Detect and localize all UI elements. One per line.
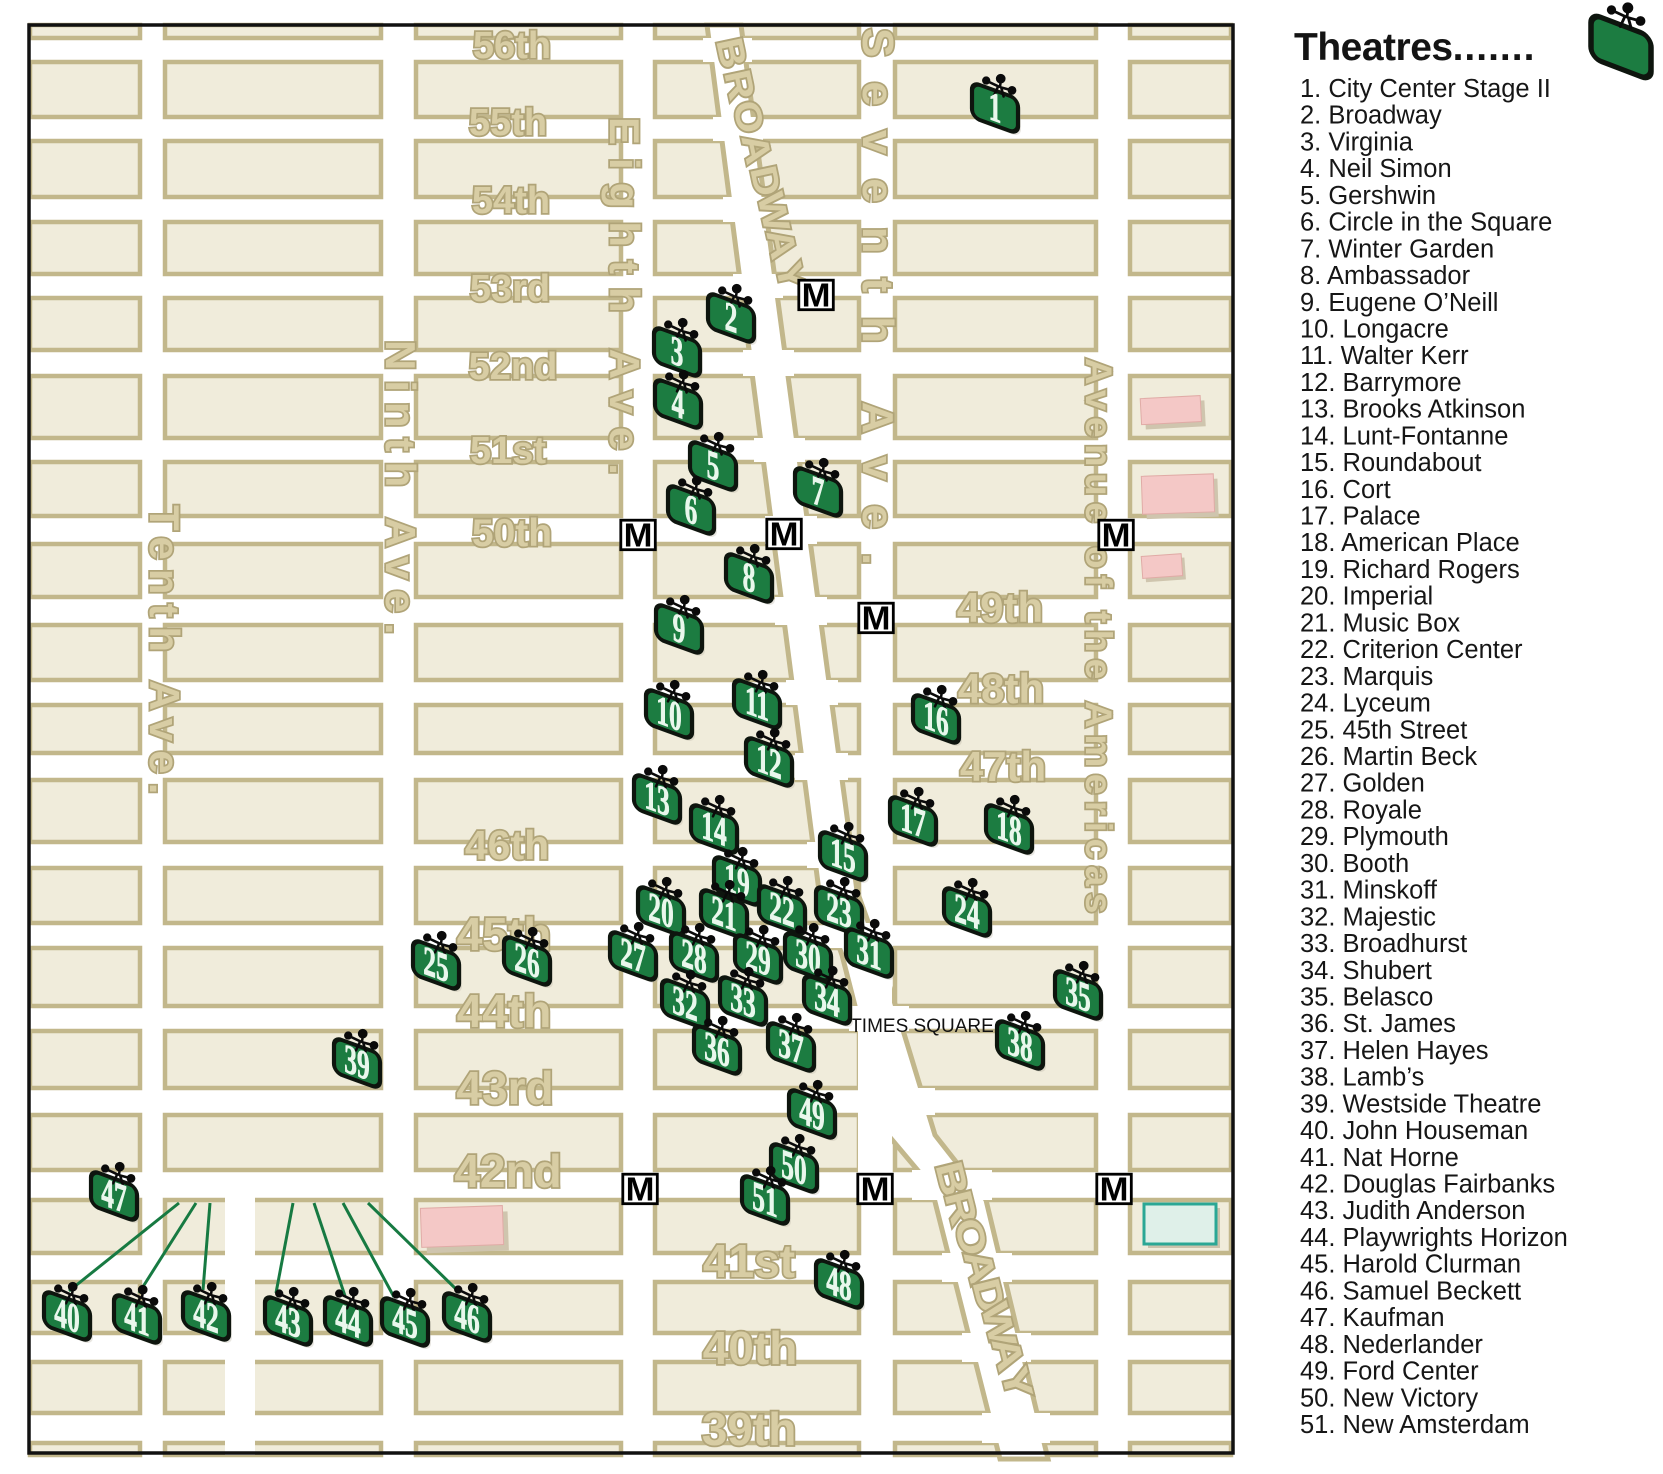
svg-text:48th: 48th: [958, 665, 1044, 712]
svg-text:11: 11: [745, 676, 769, 731]
svg-text:15: 15: [830, 828, 855, 883]
svg-text:22: 22: [769, 882, 794, 937]
svg-text:M: M: [1100, 1171, 1129, 1208]
svg-text:49: 49: [799, 1086, 824, 1141]
svg-text:29. Plymouth: 29. Plymouth: [1300, 823, 1449, 851]
svg-text:14: 14: [701, 801, 726, 856]
svg-text:32: 32: [672, 976, 697, 1031]
svg-text:49. Ford Center: 49. Ford Center: [1300, 1358, 1479, 1386]
svg-text:17: 17: [900, 793, 925, 848]
svg-text:15. Roundabout: 15. Roundabout: [1300, 449, 1482, 477]
svg-text:Tenth Ave.: Tenth Ave.: [141, 505, 188, 803]
svg-text:17. Palace: 17. Palace: [1300, 503, 1421, 531]
svg-text:M: M: [802, 277, 831, 314]
svg-text:34. Shubert: 34. Shubert: [1300, 957, 1432, 985]
svg-text:34: 34: [814, 972, 839, 1027]
svg-text:50: 50: [781, 1140, 806, 1195]
svg-text:41: 41: [124, 1291, 149, 1346]
svg-text:39: 39: [344, 1035, 369, 1090]
svg-text:31. Minskoff: 31. Minskoff: [1300, 877, 1438, 905]
svg-text:27: 27: [620, 928, 645, 983]
svg-text:42. Douglas Fairbanks: 42. Douglas Fairbanks: [1300, 1171, 1555, 1199]
svg-text:16. Cort: 16. Cort: [1300, 476, 1391, 504]
svg-text:37: 37: [778, 1019, 803, 1074]
svg-text:21: 21: [711, 886, 736, 941]
svg-text:M: M: [626, 1171, 655, 1208]
svg-text:8. Ambassador: 8. Ambassador: [1300, 262, 1471, 290]
svg-text:40. John Houseman: 40. John Houseman: [1300, 1117, 1528, 1145]
svg-text:24. Lyceum: 24. Lyceum: [1300, 690, 1431, 718]
svg-text:27. Golden: 27. Golden: [1300, 770, 1425, 798]
svg-text:40: 40: [54, 1288, 79, 1343]
svg-text:33. Broadhurst: 33. Broadhurst: [1300, 930, 1467, 958]
svg-text:36: 36: [704, 1022, 729, 1077]
svg-text:M: M: [770, 516, 799, 553]
svg-text:31: 31: [856, 925, 881, 980]
svg-text:M: M: [1102, 517, 1131, 554]
svg-text:20. Imperial: 20. Imperial: [1300, 583, 1433, 611]
svg-text:41. Nat Horne: 41. Nat Horne: [1300, 1144, 1459, 1172]
svg-text:13. Brooks Atkinson: 13. Brooks Atkinson: [1300, 396, 1525, 424]
svg-text:55th: 55th: [469, 102, 547, 144]
svg-text:Ninth Ave.: Ninth Ave.: [377, 340, 424, 645]
svg-text:51st: 51st: [470, 430, 546, 472]
svg-text:25. 45th Street: 25. 45th Street: [1300, 716, 1467, 744]
svg-text:4. Neil Simon: 4. Neil Simon: [1300, 155, 1452, 183]
svg-text:41st: 41st: [703, 1235, 795, 1287]
svg-text:26. Martin Beck: 26. Martin Beck: [1300, 743, 1477, 771]
svg-text:20: 20: [648, 883, 673, 938]
svg-text:28. Royale: 28. Royale: [1300, 796, 1422, 824]
svg-text:50. New Victory: 50. New Victory: [1300, 1384, 1478, 1412]
svg-text:4: 4: [672, 378, 685, 429]
svg-text:49th: 49th: [957, 584, 1043, 631]
svg-text:12: 12: [756, 734, 781, 789]
svg-text:9: 9: [673, 603, 686, 654]
svg-text:Seventh Ave.: Seventh Ave.: [853, 28, 902, 589]
svg-text:2. Broadway: 2. Broadway: [1300, 102, 1442, 130]
svg-text:TIMES SQUARE: TIMES SQUARE: [850, 1016, 994, 1037]
svg-text:16: 16: [923, 691, 948, 746]
svg-text:39th: 39th: [702, 1403, 797, 1455]
svg-text:35: 35: [1065, 967, 1090, 1022]
svg-text:5: 5: [707, 440, 720, 491]
svg-text:35. Belasco: 35. Belasco: [1300, 984, 1433, 1012]
svg-text:M: M: [862, 600, 891, 637]
svg-text:19. Richard Rogers: 19. Richard Rogers: [1300, 556, 1520, 584]
svg-text:3: 3: [671, 326, 684, 377]
svg-text:39. Westside Theatre: 39. Westside Theatre: [1300, 1090, 1541, 1118]
svg-text:12. Barrymore: 12. Barrymore: [1300, 369, 1462, 397]
svg-text:52nd: 52nd: [469, 346, 558, 388]
svg-text:5. Gershwin: 5. Gershwin: [1300, 182, 1436, 210]
svg-text:14. Lunt-Fontanne: 14. Lunt-Fontanne: [1300, 422, 1508, 450]
svg-text:M: M: [624, 517, 653, 554]
svg-text:22. Criterion Center: 22. Criterion Center: [1300, 636, 1523, 664]
svg-text:8: 8: [743, 552, 756, 603]
svg-text:46. Samuel Beckett: 46. Samuel Beckett: [1300, 1277, 1521, 1305]
svg-text:43. Judith Anderson: 43. Judith Anderson: [1300, 1197, 1525, 1225]
svg-text:53rd: 53rd: [470, 268, 550, 310]
svg-text:18: 18: [996, 801, 1021, 856]
svg-text:Theatres.......: Theatres.......: [1294, 26, 1535, 69]
svg-text:47: 47: [101, 1168, 126, 1223]
svg-text:51. New Amsterdam: 51. New Amsterdam: [1300, 1411, 1530, 1439]
svg-text:30. Booth: 30. Booth: [1300, 850, 1409, 878]
svg-text:10. Longacre: 10. Longacre: [1300, 316, 1449, 344]
svg-text:25: 25: [423, 937, 448, 992]
svg-text:42: 42: [193, 1288, 218, 1343]
svg-text:45. Harold Clurman: 45. Harold Clurman: [1300, 1251, 1521, 1279]
svg-text:26: 26: [514, 933, 539, 988]
svg-text:36. St. James: 36. St. James: [1300, 1010, 1456, 1038]
svg-text:38: 38: [1007, 1017, 1032, 1072]
svg-text:7: 7: [812, 466, 825, 517]
svg-text:50th: 50th: [472, 512, 552, 555]
svg-text:45: 45: [392, 1294, 417, 1349]
svg-text:3. Virginia: 3. Virginia: [1300, 128, 1414, 156]
svg-text:51: 51: [752, 1172, 777, 1227]
svg-text:46th: 46th: [465, 822, 549, 868]
svg-text:43: 43: [275, 1293, 300, 1348]
svg-text:6: 6: [685, 484, 698, 535]
svg-text:47. Kaufman: 47. Kaufman: [1300, 1304, 1445, 1332]
svg-text:11. Walter Kerr: 11. Walter Kerr: [1300, 342, 1469, 370]
svg-text:24: 24: [954, 884, 979, 939]
svg-text:40th: 40th: [703, 1322, 798, 1374]
svg-text:1. City Center Stage II: 1. City Center Stage II: [1300, 75, 1551, 103]
svg-text:9. Eugene O’Neill: 9. Eugene O’Neill: [1300, 289, 1498, 317]
svg-text:48: 48: [826, 1256, 851, 1311]
svg-text:33: 33: [730, 973, 755, 1028]
svg-text:M: M: [861, 1171, 890, 1208]
svg-text:23. Marquis: 23. Marquis: [1300, 663, 1433, 691]
svg-text:56th: 56th: [473, 25, 551, 67]
svg-text:46: 46: [454, 1289, 479, 1344]
svg-text:47th: 47th: [960, 743, 1046, 790]
svg-text:21. Music Box: 21. Music Box: [1300, 609, 1460, 637]
svg-text:37. Helen Hayes: 37. Helen Hayes: [1300, 1037, 1489, 1065]
svg-text:7. Winter Garden: 7. Winter Garden: [1300, 235, 1494, 263]
svg-text:13: 13: [644, 771, 669, 826]
svg-text:48. Nederlander: 48. Nederlander: [1300, 1331, 1483, 1359]
svg-text:18. American Place: 18. American Place: [1300, 529, 1520, 557]
svg-text:44. Playwrights Horizon: 44. Playwrights Horizon: [1300, 1224, 1568, 1252]
svg-text:10: 10: [656, 686, 681, 741]
svg-text:Eighth Ave.: Eighth Ave.: [601, 117, 648, 488]
svg-text:54th: 54th: [472, 180, 550, 222]
svg-text:Avenue of the Americas: Avenue of the Americas: [1078, 358, 1119, 920]
svg-text:44th: 44th: [457, 985, 552, 1037]
svg-text:6. Circle in the Square: 6. Circle in the Square: [1300, 209, 1552, 237]
svg-text:2: 2: [725, 292, 738, 343]
svg-text:32. Majestic: 32. Majestic: [1300, 903, 1436, 931]
svg-text:38. Lamb’s: 38. Lamb’s: [1300, 1064, 1424, 1092]
svg-text:44: 44: [335, 1293, 360, 1348]
svg-text:1: 1: [989, 82, 1002, 133]
svg-text:42nd: 42nd: [454, 1145, 561, 1197]
svg-text:43rd: 43rd: [456, 1062, 553, 1114]
